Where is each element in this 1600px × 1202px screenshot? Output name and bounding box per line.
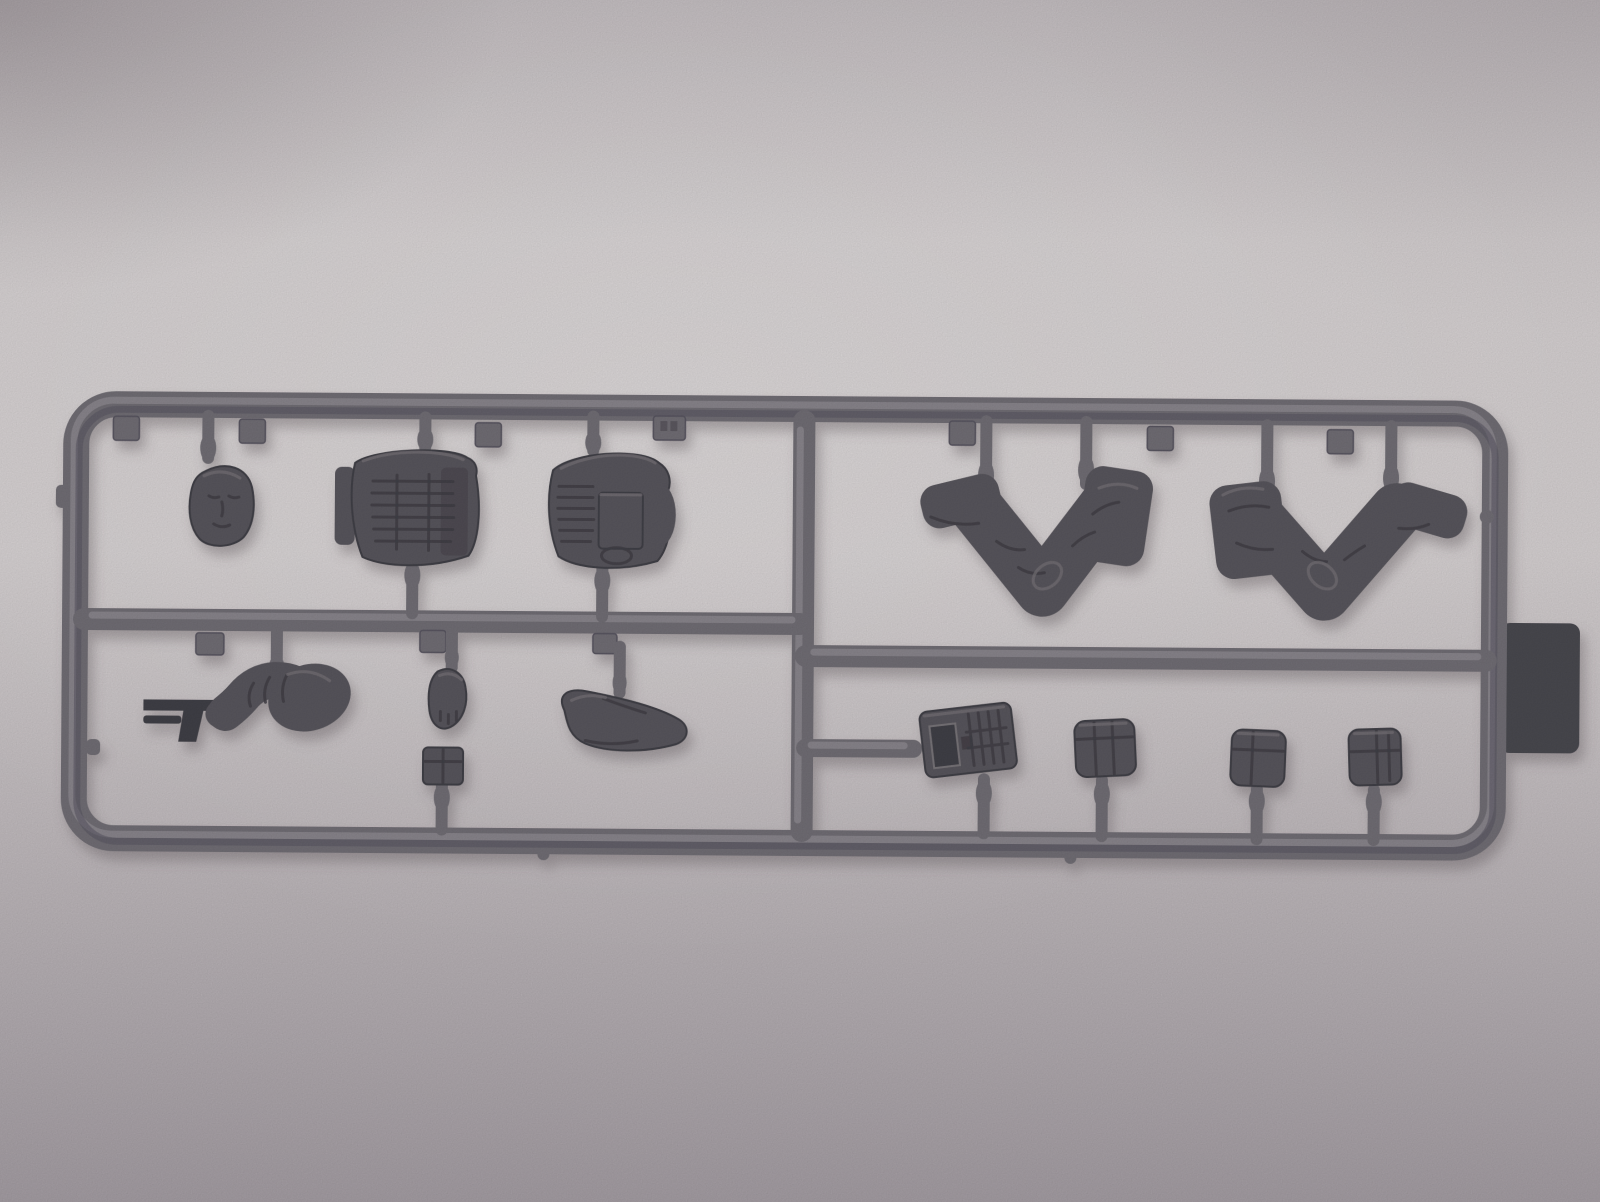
photo-stage [0,0,1600,1202]
photo-grain-overlay [0,0,1600,1202]
sprue-photo [0,0,1600,1202]
